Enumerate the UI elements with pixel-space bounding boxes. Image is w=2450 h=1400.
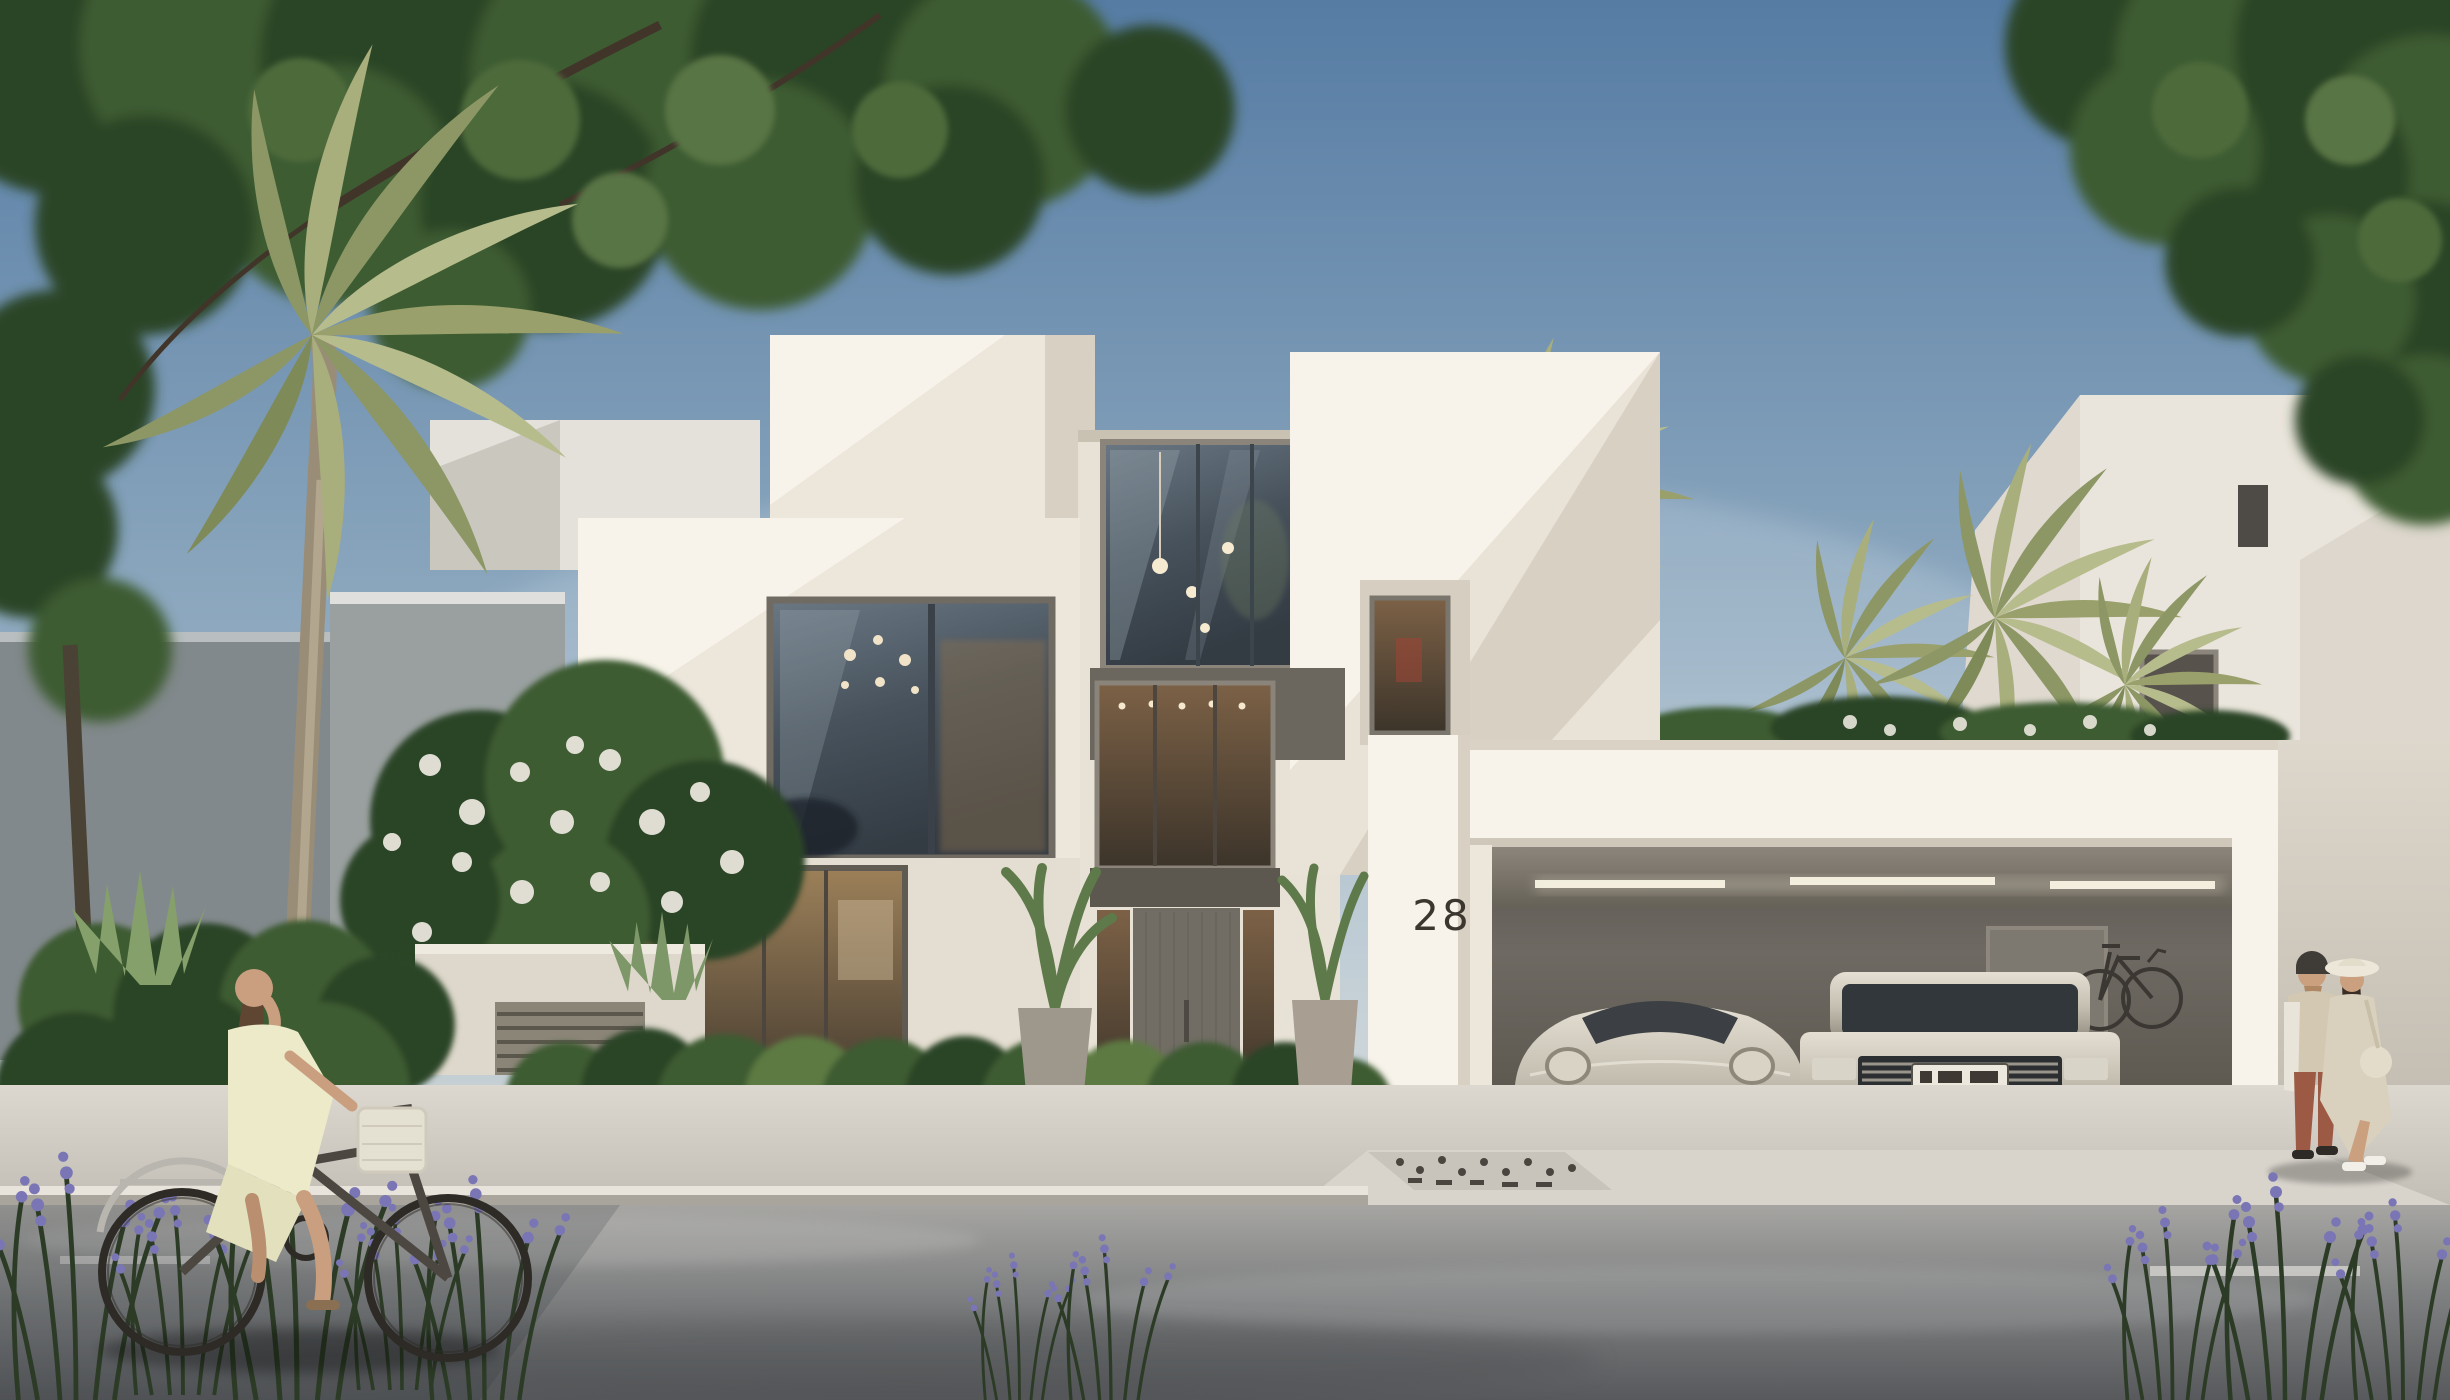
sandal <box>306 1300 340 1310</box>
rover-headlight-right <box>2064 1058 2108 1080</box>
shoulder-bag <box>2360 1046 2392 1078</box>
scene-canvas: 28 <box>0 0 2450 1400</box>
garage-ceiling <box>1492 845 2232 907</box>
house-number: 28 <box>1412 891 1471 940</box>
bike-basket <box>358 1108 426 1172</box>
ceiling-lights <box>1535 877 2225 892</box>
recessed-window <box>1360 580 1470 745</box>
door-handle <box>1184 1000 1189 1042</box>
architectural-render: 28 <box>0 0 2450 1400</box>
porsche-headlight-left <box>1547 1049 1589 1083</box>
rover-windshield <box>1842 984 2078 1036</box>
entry-upper-glass <box>1097 683 1273 868</box>
porsche-headlight-right <box>1731 1049 1773 1083</box>
rover-headlight-left <box>1812 1058 1856 1080</box>
living-room-window <box>754 600 1052 858</box>
